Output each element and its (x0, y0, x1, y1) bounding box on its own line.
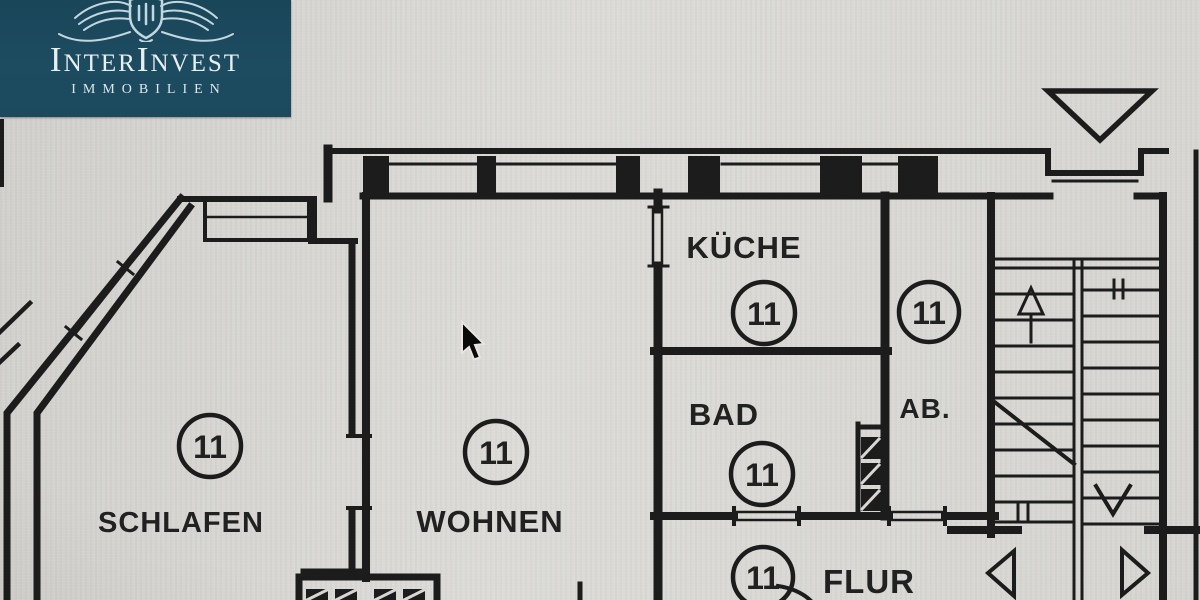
winged-crest-icon (51, 0, 241, 42)
flur-number: 11 (746, 560, 780, 596)
wohnen-right-wall (580, 193, 668, 600)
exterior-top-wall (327, 149, 1166, 198)
balcony-strip (299, 577, 437, 600)
flur-label: FLUR (823, 563, 915, 600)
ab-label: AB. (899, 393, 950, 424)
stair-up-arrow-icon (1019, 288, 1043, 342)
brand-name: InterInvest (50, 42, 241, 78)
stair-treads-left (995, 294, 1074, 522)
ab-number: 11 (912, 295, 946, 331)
brand-banner: InterInvest IMMOBILIEN (0, 0, 291, 117)
floorplan-photo-screenshot: InterInvest IMMOBILIEN (0, 0, 1200, 600)
door-swing-left-icon (988, 551, 1014, 596)
kueche-number: 11 (747, 296, 781, 332)
bad-number: 11 (745, 457, 779, 493)
door-swing-right-icon (1122, 550, 1148, 595)
stair-treads-right (1082, 290, 1160, 524)
kueche-label: KÜCHE (686, 230, 801, 265)
wohnen-label: WOHNEN (416, 504, 563, 539)
entrance-triangle-icon (1048, 91, 1152, 140)
stair-break-line (992, 400, 1074, 464)
room-number-circles (179, 282, 959, 600)
brand-subtitle: IMMOBILIEN (64, 82, 227, 98)
schlafen-window (180, 199, 355, 241)
stairwell (951, 152, 1200, 600)
schlafen-label: SCHLAFEN (98, 507, 264, 539)
mouse-cursor-icon (462, 322, 484, 360)
stair-down-arrow-icon (1096, 486, 1130, 514)
wohnen-number: 11 (479, 435, 513, 471)
schlafen-wohnen-partition (304, 196, 370, 578)
schlafen-number: 11 (193, 429, 227, 465)
bad-label: BAD (689, 397, 759, 432)
shaft-hatched (858, 424, 884, 516)
